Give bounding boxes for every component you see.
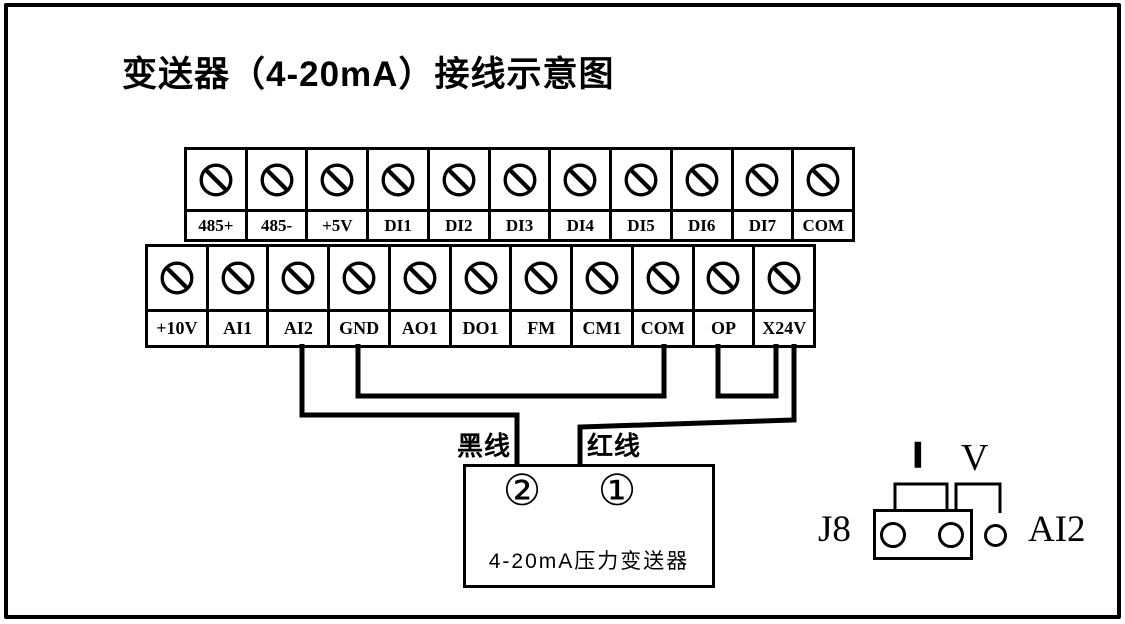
screw-terminal bbox=[452, 247, 510, 309]
pressure-transmitter-box: ② ① 4-20mA压力变送器 bbox=[463, 464, 715, 588]
screw-terminal-icon bbox=[399, 257, 441, 299]
terminal-cell: CM1 bbox=[573, 247, 634, 345]
terminal-label: OP bbox=[695, 309, 753, 345]
screw-terminal bbox=[187, 150, 245, 209]
terminal-label: 485+ bbox=[187, 209, 245, 239]
screw-terminal-icon bbox=[702, 257, 744, 299]
terminal-label: X24V bbox=[755, 309, 813, 345]
screw-terminal-icon bbox=[763, 257, 805, 299]
j8-connector-label: J8 bbox=[818, 508, 851, 551]
jumper-pin-2 bbox=[938, 522, 964, 548]
terminal-cell: OP bbox=[695, 247, 756, 345]
terminal-cell: DI2 bbox=[430, 150, 491, 239]
screw-terminal-icon bbox=[195, 159, 237, 201]
terminal-cell: COM bbox=[794, 150, 852, 239]
screw-terminal-icon bbox=[460, 257, 502, 299]
terminal-label: AI1 bbox=[209, 309, 267, 345]
transmitter-terminal-2: ② bbox=[500, 469, 544, 513]
terminal-cell: DO1 bbox=[452, 247, 513, 345]
terminal-label: GND bbox=[330, 309, 388, 345]
screw-terminal-icon bbox=[581, 257, 623, 299]
screw-terminal-icon bbox=[520, 257, 562, 299]
screw-terminal bbox=[330, 247, 388, 309]
terminal-cell: GND bbox=[330, 247, 391, 345]
terminal-cell: DI5 bbox=[612, 150, 673, 239]
screw-terminal bbox=[794, 150, 852, 209]
screw-terminal bbox=[673, 150, 731, 209]
terminal-label: +5V bbox=[308, 209, 366, 239]
screw-terminal bbox=[369, 150, 427, 209]
screw-terminal bbox=[269, 247, 327, 309]
screw-terminal bbox=[755, 247, 813, 309]
terminal-label: DI1 bbox=[369, 209, 427, 239]
current-mode-label: I bbox=[913, 436, 923, 476]
terminal-label: DI3 bbox=[491, 209, 549, 239]
terminal-cell: DI7 bbox=[734, 150, 795, 239]
screw-terminal-icon bbox=[802, 159, 844, 201]
wiring-diagram: 变送器（4-20mA）接线示意图 485+485-+5VDI1DI2DI3DI4… bbox=[0, 0, 1125, 624]
terminal-cell: AO1 bbox=[391, 247, 452, 345]
screw-terminal-icon bbox=[377, 159, 419, 201]
screw-terminal bbox=[491, 150, 549, 209]
screw-terminal bbox=[512, 247, 570, 309]
terminal-label: 485- bbox=[248, 209, 306, 239]
screw-terminal bbox=[573, 247, 631, 309]
terminal-cell: COM bbox=[634, 247, 695, 345]
terminal-cell: +5V bbox=[308, 150, 369, 239]
screw-terminal-icon bbox=[277, 257, 319, 299]
screw-terminal bbox=[308, 150, 366, 209]
terminal-label: AI2 bbox=[269, 309, 327, 345]
terminal-cell: 485- bbox=[248, 150, 309, 239]
screw-terminal-icon bbox=[338, 257, 380, 299]
terminal-cell: +10V bbox=[148, 247, 209, 345]
transmitter-terminal-1: ① bbox=[595, 469, 639, 513]
screw-terminal bbox=[551, 150, 609, 209]
screw-terminal bbox=[695, 247, 753, 309]
screw-terminal bbox=[209, 247, 267, 309]
terminal-cell: DI3 bbox=[491, 150, 552, 239]
transmitter-label: 4-20mA压力变送器 bbox=[466, 545, 712, 575]
screw-terminal-icon bbox=[741, 159, 783, 201]
terminal-cell: DI6 bbox=[673, 150, 734, 239]
jumper-pin-1 bbox=[880, 522, 906, 548]
terminal-cell: DI1 bbox=[369, 150, 430, 239]
terminal-cell: X24V bbox=[755, 247, 813, 345]
screw-terminal-icon bbox=[316, 159, 358, 201]
red-wire-label: 红线 bbox=[587, 426, 641, 463]
terminal-cell: FM bbox=[512, 247, 573, 345]
terminal-cell: 485+ bbox=[187, 150, 248, 239]
terminal-cell: AI1 bbox=[209, 247, 270, 345]
ai2-channel-label: AI2 bbox=[1028, 508, 1086, 551]
screw-terminal-icon bbox=[499, 159, 541, 201]
screw-terminal-icon bbox=[620, 159, 662, 201]
terminal-label: CM1 bbox=[573, 309, 631, 345]
terminal-label: DI5 bbox=[612, 209, 670, 239]
terminal-strip-bottom: +10VAI1AI2GNDAO1DO1FMCM1COMOPX24V bbox=[145, 244, 816, 348]
screw-terminal bbox=[430, 150, 488, 209]
terminal-label: DI7 bbox=[734, 209, 792, 239]
terminal-label: COM bbox=[634, 309, 692, 345]
screw-terminal-icon bbox=[217, 257, 259, 299]
screw-terminal bbox=[612, 150, 670, 209]
screw-terminal-icon bbox=[156, 257, 198, 299]
screw-terminal bbox=[148, 247, 206, 309]
terminal-cell: DI4 bbox=[551, 150, 612, 239]
terminal-label: DI6 bbox=[673, 209, 731, 239]
screw-terminal bbox=[634, 247, 692, 309]
voltage-mode-label: V bbox=[961, 436, 988, 480]
terminal-label: AO1 bbox=[391, 309, 449, 345]
terminal-label: +10V bbox=[148, 309, 206, 345]
terminal-label: DI4 bbox=[551, 209, 609, 239]
terminal-label: FM bbox=[512, 309, 570, 345]
black-wire-label: 黑线 bbox=[457, 426, 511, 463]
terminal-label: COM bbox=[794, 209, 852, 239]
screw-terminal-icon bbox=[438, 159, 480, 201]
diagram-title: 变送器（4-20mA）接线示意图 bbox=[122, 46, 614, 97]
terminal-label: DI2 bbox=[430, 209, 488, 239]
terminal-strip-top: 485+485-+5VDI1DI2DI3DI4DI5DI6DI7COM bbox=[184, 147, 855, 242]
screw-terminal bbox=[391, 247, 449, 309]
screw-terminal-icon bbox=[256, 159, 298, 201]
screw-terminal bbox=[248, 150, 306, 209]
screw-terminal bbox=[734, 150, 792, 209]
jumper-pin-3 bbox=[984, 524, 1007, 547]
screw-terminal-icon bbox=[642, 257, 684, 299]
screw-terminal-icon bbox=[559, 159, 601, 201]
screw-terminal-icon bbox=[681, 159, 723, 201]
terminal-cell: AI2 bbox=[269, 247, 330, 345]
terminal-label: DO1 bbox=[452, 309, 510, 345]
